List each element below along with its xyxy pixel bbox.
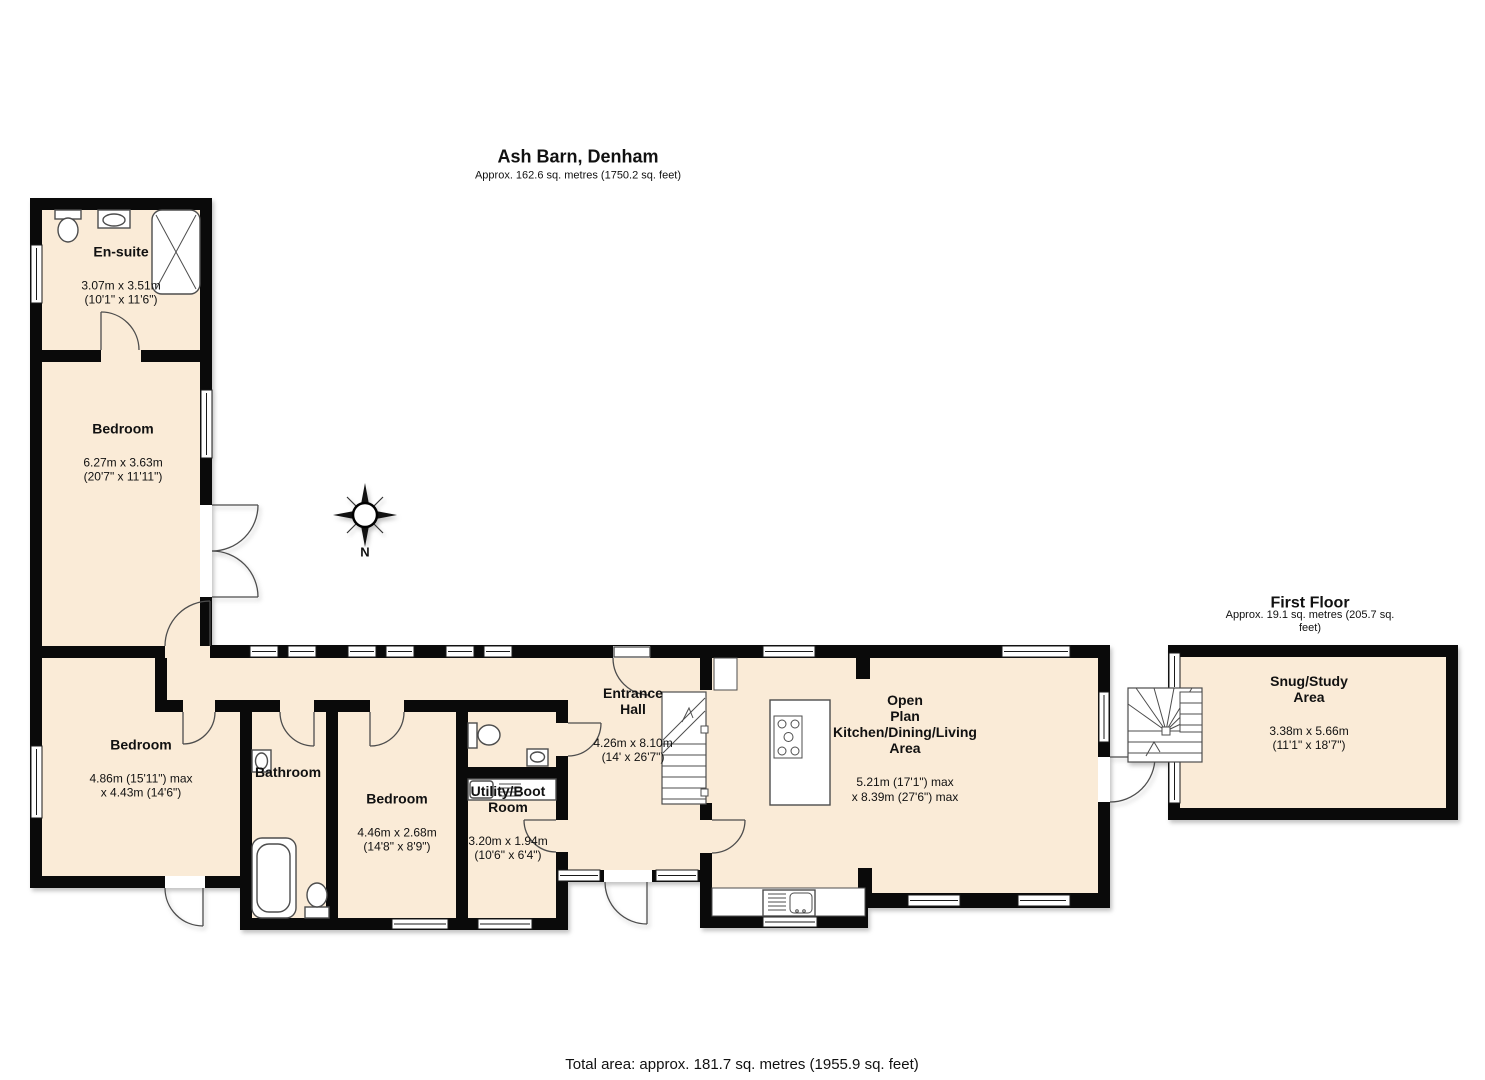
room-name: Bedroom xyxy=(357,790,436,806)
room-dims: 6.27m x 3.63m (20'7" x 11'11") xyxy=(83,455,162,484)
snug-stairs xyxy=(1128,688,1202,762)
room-dims: 3.07m x 3.51m (10'1" x 11'6") xyxy=(81,278,160,307)
first-floor-subtitle: Approx. 19.1 sq. metres (205.7 sq. feet) xyxy=(1223,609,1398,635)
label-bedroom-top: Bedroom 6.27m x 3.63m (20'7" x 11'11") xyxy=(83,401,162,503)
room-dims: 5.21m (17'1") max x 8.39m (27'6") max xyxy=(833,775,977,804)
compass-north-label: N xyxy=(360,544,369,559)
bedroom-left-garden-door xyxy=(165,888,203,926)
room-name: Entrance Hall xyxy=(593,685,672,717)
label-bedroom-left: Bedroom 4.86m (15'11") max x 4.43m (14'6… xyxy=(89,717,192,819)
floorplan-page: Ash Barn, Denham Approx. 162.6 sq. metre… xyxy=(0,0,1485,1080)
bathtub-icon xyxy=(252,838,296,918)
room-dims: 4.46m x 2.68m (14'8" x 8'9") xyxy=(357,825,436,854)
bedroom-top-french-doors xyxy=(212,505,258,597)
label-snug: Snug/Study Area 3.38m x 5.66m (11'1" x 1… xyxy=(1269,654,1348,772)
label-open-plan: Open Plan Kitchen/Dining/Living Area 5.2… xyxy=(833,673,977,823)
room-dims: 4.86m (15'11") max x 4.43m (14'6") xyxy=(89,771,192,800)
room-name: En-suite xyxy=(81,243,160,259)
hall-cupboard xyxy=(714,658,737,690)
label-bathroom: Bathroom xyxy=(255,745,321,799)
plan-title: Ash Barn, Denham xyxy=(497,146,658,167)
room-name: Open Plan Kitchen/Dining/Living Area xyxy=(833,692,977,756)
compass-icon xyxy=(333,483,397,547)
hall-garden-door xyxy=(605,882,647,924)
plan-subtitle: Approx. 162.6 sq. metres (1750.2 sq. fee… xyxy=(475,170,681,183)
room-name: Snug/Study Area xyxy=(1269,673,1348,705)
floorplan-drawing xyxy=(0,0,1485,1080)
kitchen-stairs-door xyxy=(1110,757,1155,802)
label-ensuite: En-suite 3.07m x 3.51m (10'1" x 11'6") xyxy=(81,224,160,326)
label-utility: Utility/Boot Room 3.20m x 1.94m (10'6" x… xyxy=(468,764,547,882)
room-dims: 4.26m x 8.10m (14' x 26'7") xyxy=(593,736,672,765)
room-name: Bathroom xyxy=(255,764,321,780)
room-name: Bedroom xyxy=(89,736,192,752)
kitchen-sink-icon xyxy=(763,890,815,916)
total-area-footer: Total area: approx. 181.7 sq. metres (19… xyxy=(565,1056,919,1074)
label-hall: Entrance Hall 4.26m x 8.10m (14' x 26'7"… xyxy=(593,666,672,784)
room-dims: 3.20m x 1.94m (10'6" x 6'4") xyxy=(468,834,547,863)
kitchen-island-icon xyxy=(770,700,830,805)
room-name: Utility/Boot Room xyxy=(468,783,547,815)
bathroom-toilet-icon xyxy=(305,883,329,918)
label-bedroom-mid: Bedroom 4.46m x 2.68m (14'8" x 8'9") xyxy=(357,771,436,873)
room-dims: 3.38m x 5.66m (11'1" x 18'7") xyxy=(1269,724,1348,753)
room-name: Bedroom xyxy=(83,420,162,436)
